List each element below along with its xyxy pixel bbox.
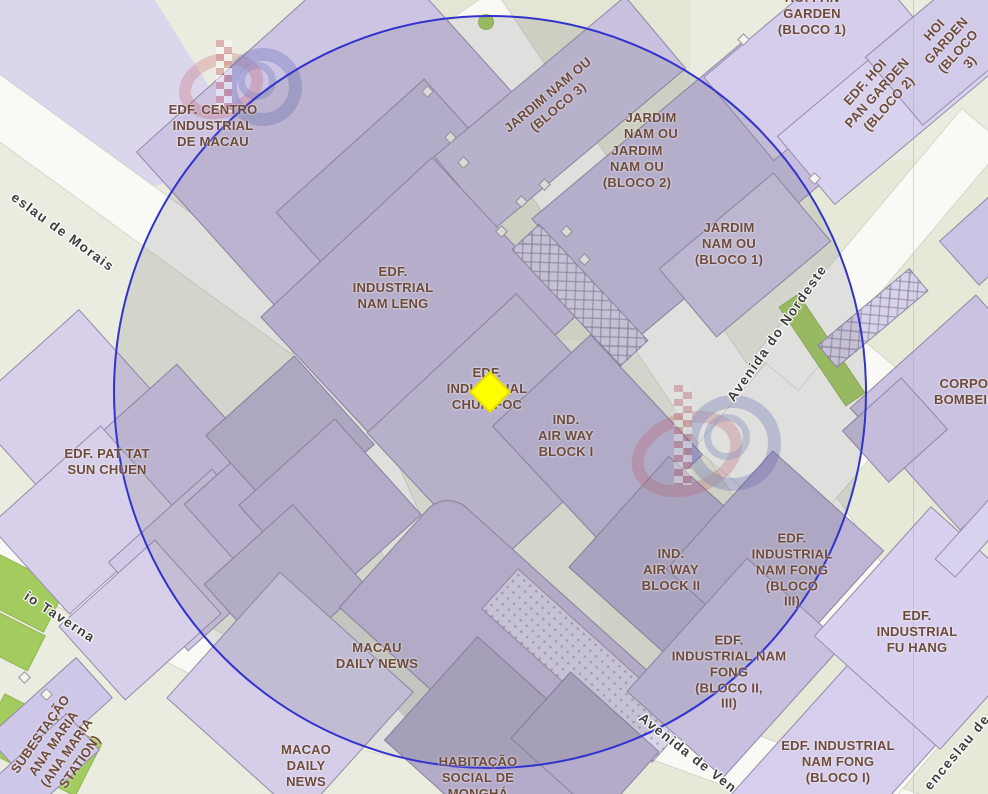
map-label-edf-centro-industrial-de-macau: EDF. CENTRO INDUSTRIAL DE MACAU [169, 102, 258, 150]
map-label-ind-air-way-block-ii: IND. AIR WAY BLOCK II [642, 546, 701, 594]
map-label-hoi-pan-garden-bloco-1: HOI PAN GARDEN (BLOCO 1) [778, 0, 846, 38]
map-label-edf-industrial-nam-fong-bloco-iii: EDF. INDUSTRIAL NAM FONG (BLOCO III) [752, 530, 833, 609]
graticule-line [913, 0, 914, 794]
map-label-habitacao-social-de-mongha: HABITAÇÃO SOCIAL DE MONGHÁ [439, 754, 518, 794]
map-label-jardim-nam-ou: JARDIM NAM OU [624, 110, 678, 142]
map-label-edf-industrial-nam-leng: EDF. INDUSTRIAL NAM LENG [353, 264, 434, 312]
map-label-corpo-de-bombeiros: CORPO DE BOMBEIROS [934, 376, 988, 408]
map-label-macao-daily-news: MACAO DAILY NEWS [281, 742, 331, 790]
map-label-macau-daily-news: MACAU DAILY NEWS [336, 640, 418, 672]
map-label-jardim-nam-ou-bloco-2: JARDIM NAM OU (BLOCO 2) [603, 143, 671, 191]
map-label-edf-industrial-nam-fong-bloco-i: EDF. INDUSTRIAL NAM FONG (BLOCO I) [781, 738, 895, 786]
map-label-edf-industrial-fu-hang: EDF. INDUSTRIAL FU HANG [877, 608, 958, 656]
map-label-jardim-nam-ou-bloco-1: JARDIM NAM OU (BLOCO 1) [695, 220, 763, 268]
map-point-symbol [18, 671, 31, 684]
map-canvas[interactable]: EDF. CENTRO INDUSTRIAL DE MACAUJARDIM NA… [0, 0, 988, 794]
map-label-edf-pat-tat-sun-chuen: EDF. PAT TAT SUN CHUEN [64, 446, 149, 478]
map-label-ind-air-way-block-i: IND. AIR WAY BLOCK I [538, 412, 594, 460]
map-label-edf-industrial-nam-fong-bloco-ii-iii: EDF. INDUSTRIAL NAM FONG (BLOCO II, III) [672, 632, 787, 711]
logo-checker-strip [216, 40, 232, 112]
